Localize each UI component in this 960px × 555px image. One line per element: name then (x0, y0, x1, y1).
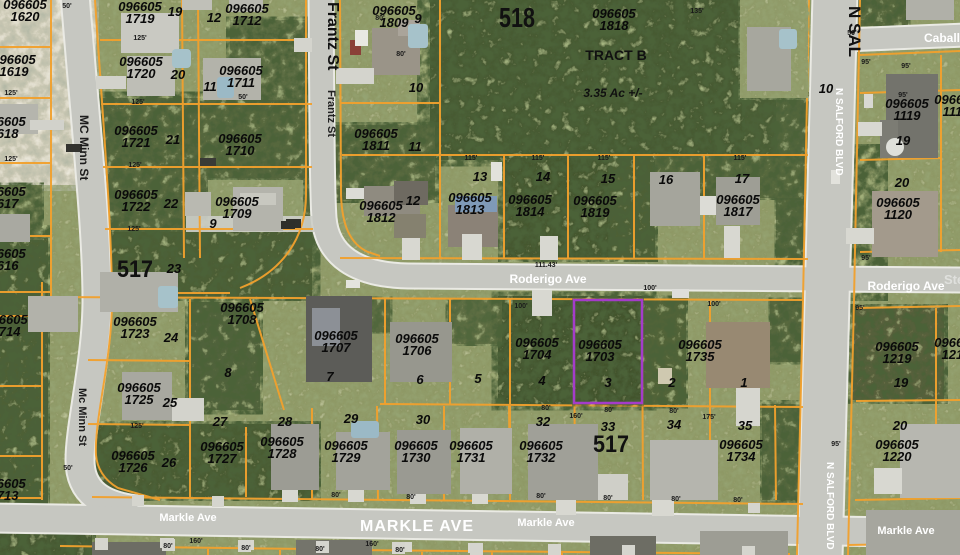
svg-text:160': 160' (569, 413, 583, 420)
svg-text:MC Minn St: MC Minn St (77, 115, 91, 180)
svg-text:1729: 1729 (332, 450, 362, 465)
svg-text:80': 80' (603, 495, 613, 502)
svg-text:1620: 1620 (11, 9, 41, 24)
svg-text:135': 135' (690, 8, 704, 15)
svg-text:125': 125' (133, 35, 147, 42)
svg-text:19: 19 (168, 4, 183, 19)
svg-text:5: 5 (474, 371, 482, 386)
svg-text:1617: 1617 (0, 196, 19, 211)
svg-text:80': 80' (395, 547, 405, 554)
svg-text:N SALFORD BLVD: N SALFORD BLVD (833, 88, 844, 176)
svg-text:7: 7 (326, 369, 334, 384)
svg-text:8: 8 (224, 365, 232, 380)
svg-text:Markle Ave: Markle Ave (877, 525, 934, 537)
svg-text:26: 26 (161, 455, 177, 470)
svg-text:10: 10 (409, 80, 424, 95)
svg-text:517: 517 (593, 431, 629, 458)
svg-text:160': 160' (365, 541, 379, 548)
svg-text:12: 12 (406, 193, 421, 208)
svg-text:80': 80' (406, 494, 416, 501)
svg-text:1812: 1812 (367, 210, 397, 225)
svg-text:1731: 1731 (457, 450, 486, 465)
svg-text:1719: 1719 (126, 11, 156, 26)
svg-text:1616: 1616 (0, 258, 19, 273)
svg-text:1711: 1711 (227, 75, 255, 90)
svg-text:115': 115' (734, 155, 747, 162)
svg-text:23: 23 (166, 261, 182, 276)
svg-text:1707: 1707 (322, 340, 352, 355)
svg-text:80': 80' (315, 546, 325, 553)
svg-text:1118: 1118 (943, 104, 960, 119)
svg-text:19: 19 (896, 133, 911, 148)
svg-text:19: 19 (894, 375, 909, 390)
svg-text:TRACT B: TRACT B (585, 47, 646, 63)
svg-text:9: 9 (209, 216, 217, 231)
svg-text:80': 80' (163, 543, 173, 550)
svg-text:1723: 1723 (121, 326, 151, 341)
svg-text:Roderigo Ave: Roderigo Ave (867, 279, 944, 293)
svg-text:11: 11 (408, 139, 422, 154)
svg-text:14: 14 (536, 169, 551, 184)
svg-text:80': 80' (604, 407, 614, 414)
svg-text:1726: 1726 (119, 460, 149, 475)
svg-text:N SALFORD BLVD: N SALFORD BLVD (824, 462, 835, 550)
svg-text:100': 100' (514, 303, 528, 310)
svg-text:1730: 1730 (402, 450, 432, 465)
svg-text:Markle Ave: Markle Ave (159, 512, 216, 524)
svg-text:80': 80' (669, 408, 679, 415)
svg-text:175': 175' (702, 414, 716, 421)
svg-text:517: 517 (117, 256, 153, 283)
svg-text:115': 115' (598, 155, 611, 162)
svg-text:1727: 1727 (208, 451, 238, 466)
svg-text:Roderigo Ave: Roderigo Ave (509, 272, 586, 286)
svg-text:1720: 1720 (127, 66, 157, 81)
svg-text:1704: 1704 (523, 347, 553, 362)
svg-text:1703: 1703 (586, 349, 616, 364)
svg-text:17: 17 (735, 171, 750, 186)
svg-text:10: 10 (819, 81, 834, 96)
svg-text:21: 21 (165, 132, 180, 147)
svg-text:125': 125' (128, 162, 142, 169)
svg-text:125': 125' (4, 90, 18, 97)
svg-text:95': 95' (901, 63, 911, 70)
svg-text:2: 2 (667, 375, 676, 390)
svg-text:1819: 1819 (581, 205, 611, 220)
svg-text:1721: 1721 (122, 135, 151, 150)
svg-text:22: 22 (163, 196, 179, 211)
svg-text:25: 25 (162, 395, 178, 410)
svg-text:115': 115' (532, 155, 545, 162)
svg-text:80': 80' (733, 497, 743, 504)
svg-text:1814: 1814 (516, 204, 546, 219)
svg-text:1714: 1714 (0, 324, 21, 339)
svg-text:125': 125' (4, 156, 18, 163)
svg-text:125': 125' (131, 99, 145, 106)
svg-text:95': 95' (861, 59, 871, 66)
svg-text:1734: 1734 (727, 449, 757, 464)
svg-text:95': 95' (855, 305, 865, 312)
svg-text:29: 29 (343, 411, 359, 426)
svg-text:4: 4 (537, 373, 546, 388)
svg-text:20: 20 (894, 175, 910, 190)
svg-text:16: 16 (659, 172, 674, 187)
svg-text:115': 115' (465, 155, 478, 162)
svg-text:80': 80' (671, 496, 681, 503)
svg-text:1713: 1713 (0, 488, 19, 503)
svg-text:13: 13 (473, 169, 488, 184)
svg-text:80': 80' (541, 405, 551, 412)
svg-text:1220: 1220 (883, 449, 913, 464)
svg-text:95': 95' (861, 255, 871, 262)
svg-text:1817: 1817 (724, 204, 754, 219)
svg-text:1811: 1811 (362, 138, 390, 153)
svg-text:100': 100' (643, 285, 657, 292)
svg-text:1818: 1818 (600, 18, 630, 33)
svg-text:15: 15 (601, 171, 616, 186)
svg-text:34: 34 (667, 417, 682, 432)
svg-text:3.35 Ac +/-: 3.35 Ac +/- (583, 86, 642, 100)
svg-text:Frantz St: Frantz St (324, 2, 341, 71)
svg-text:Markle Ave: Markle Ave (517, 517, 574, 529)
svg-text:24: 24 (163, 330, 179, 345)
svg-text:80': 80' (536, 493, 546, 500)
svg-text:125': 125' (130, 423, 144, 430)
svg-text:28: 28 (277, 414, 293, 429)
svg-text:1732: 1732 (527, 450, 557, 465)
svg-text:80': 80' (331, 492, 341, 499)
svg-text:160': 160' (189, 538, 203, 545)
svg-text:1: 1 (740, 375, 747, 390)
svg-text:50': 50' (238, 94, 248, 101)
svg-text:50': 50' (847, 30, 857, 37)
svg-text:32: 32 (536, 414, 551, 429)
svg-text:1813: 1813 (456, 202, 486, 217)
svg-text:1706: 1706 (403, 343, 433, 358)
svg-text:80': 80' (396, 51, 406, 58)
svg-text:111.43': 111.43' (535, 262, 558, 269)
svg-text:50': 50' (62, 3, 72, 10)
svg-text:1710: 1710 (226, 143, 256, 158)
svg-text:80': 80' (241, 545, 251, 552)
svg-text:Frantz St: Frantz St (325, 90, 337, 137)
svg-text:518: 518 (499, 2, 535, 33)
svg-text:MARKLE AVE: MARKLE AVE (360, 518, 474, 535)
svg-text:12: 12 (207, 10, 222, 25)
svg-text:Caball: Caball (924, 31, 960, 45)
svg-text:1728: 1728 (268, 446, 298, 461)
svg-text:1618: 1618 (0, 126, 19, 141)
svg-text:1120: 1120 (884, 207, 913, 222)
svg-text:20: 20 (892, 418, 908, 433)
svg-text:11: 11 (203, 79, 217, 94)
svg-text:1218: 1218 (942, 347, 960, 362)
svg-text:6: 6 (416, 372, 424, 387)
svg-text:1712: 1712 (233, 13, 263, 28)
svg-text:1725: 1725 (125, 392, 155, 407)
svg-text:1735: 1735 (686, 349, 716, 364)
svg-text:100': 100' (707, 301, 721, 308)
svg-text:1119: 1119 (894, 108, 922, 123)
svg-text:1709: 1709 (223, 206, 253, 221)
svg-text:27: 27 (212, 414, 228, 429)
svg-text:80': 80' (375, 15, 385, 22)
svg-text:9: 9 (414, 11, 422, 26)
svg-text:1619: 1619 (0, 64, 29, 79)
svg-text:1219: 1219 (883, 351, 913, 366)
svg-text:Stella: Stella (944, 272, 960, 287)
svg-text:50': 50' (63, 465, 73, 472)
svg-text:35: 35 (738, 418, 753, 433)
svg-text:125': 125' (127, 226, 141, 233)
svg-text:95': 95' (898, 92, 908, 99)
svg-text:1708: 1708 (228, 312, 258, 327)
svg-text:1722: 1722 (122, 199, 152, 214)
svg-text:3: 3 (604, 375, 612, 390)
svg-text:20: 20 (170, 67, 186, 82)
svg-text:Mc Minn St: Mc Minn St (76, 388, 88, 446)
svg-text:95': 95' (831, 441, 841, 448)
svg-text:30: 30 (416, 412, 431, 427)
